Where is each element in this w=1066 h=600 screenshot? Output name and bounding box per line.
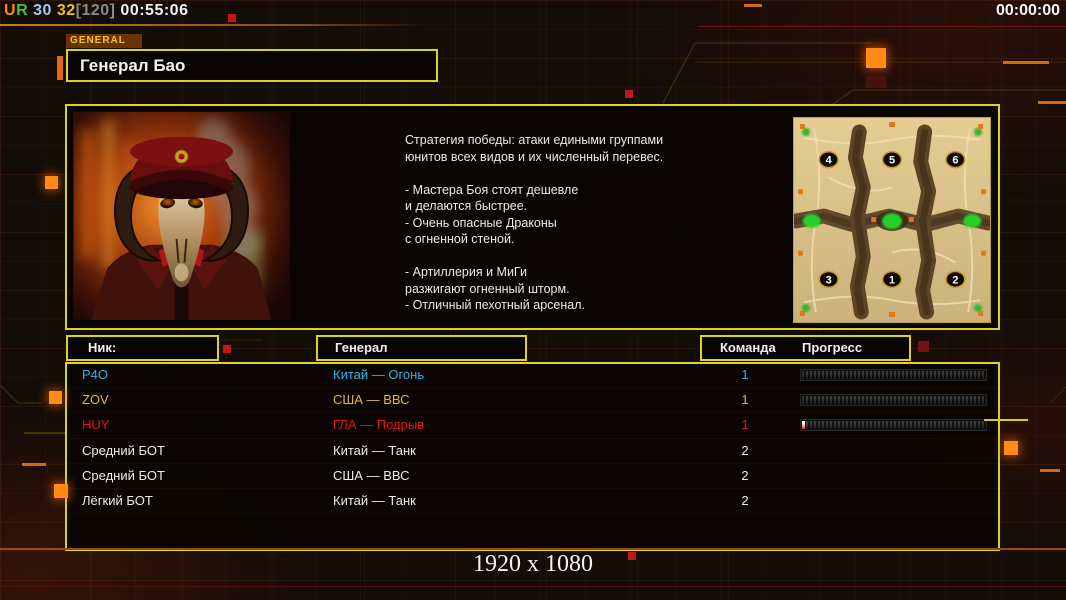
player-team: 1	[733, 413, 757, 437]
player-nick: Лёгкий БОТ	[82, 489, 153, 513]
general-header-label: Генерал	[335, 337, 387, 359]
progress-ticks	[802, 421, 985, 429]
decor-dash	[1003, 61, 1049, 64]
stat-segment: 32	[52, 2, 76, 19]
progress-header-label: Прогресс	[802, 337, 862, 359]
player-row: Средний БОТ Китай — Танк 2	[67, 439, 998, 464]
decor-dash	[744, 4, 762, 7]
player-row: ZOV США — ВВС 1	[67, 388, 998, 413]
players-rows: P4O Китай — Огонь 1 ZOV США — ВВС 1 HUY …	[67, 363, 998, 514]
player-row: Лёгкий БОТ Китай — Танк 2	[67, 489, 998, 514]
player-nick: HUY	[82, 413, 109, 437]
general-name: Генерал Бао	[68, 51, 436, 80]
title-accent-bar	[57, 56, 63, 80]
svg-text:3: 3	[826, 274, 832, 286]
player-general: Китай — Огонь	[333, 363, 424, 387]
player-general: Китай — Танк	[333, 439, 416, 463]
progress-ticks	[802, 371, 985, 379]
portrait-art	[73, 112, 290, 320]
stats-underline	[0, 24, 430, 26]
svg-text:5: 5	[889, 155, 895, 167]
player-team: 1	[733, 363, 757, 387]
player-general: ГЛА — Подрыв	[333, 413, 424, 437]
top-bar-stats: UR 30 32[120] 00:55:06	[4, 2, 188, 20]
decor-square	[866, 76, 886, 88]
decor-dash	[984, 419, 1028, 421]
bottom-accent-line	[0, 548, 1066, 550]
decor-square	[1004, 441, 1018, 455]
players-panel: P4O Китай — Огонь 1 ZOV США — ВВС 1 HUY …	[65, 362, 1000, 551]
player-team: 2	[733, 464, 757, 488]
svg-text:1: 1	[889, 274, 895, 286]
bottom-faint-line	[0, 586, 1066, 587]
minimap-art: 456312	[794, 118, 990, 322]
player-nick: ZOV	[82, 388, 109, 412]
general-title-box: Генерал Бао	[66, 49, 438, 82]
stat-segment: R	[16, 2, 28, 19]
top-right-line	[698, 26, 1066, 27]
svg-text:6: 6	[952, 155, 958, 167]
player-nick: P4O	[82, 363, 108, 387]
svg-text:4: 4	[826, 155, 832, 167]
briefing-panel: Стратегия победы: атаки едиными группами…	[65, 104, 1000, 330]
progress-ticks	[802, 396, 985, 404]
decor-square	[49, 391, 62, 404]
stat-segment: [120]	[76, 2, 116, 19]
player-general: США — ВВС	[333, 388, 410, 412]
svg-text:2: 2	[952, 274, 958, 286]
nick-header-label: Ник:	[88, 337, 116, 359]
minimap: 456312	[793, 117, 991, 323]
player-progress-bar	[800, 419, 987, 431]
decor-square	[223, 345, 231, 353]
player-general: Китай — Танк	[333, 489, 416, 513]
progress-fill	[802, 421, 805, 429]
decor-square	[866, 48, 886, 68]
player-team: 1	[733, 388, 757, 412]
decor-square	[918, 341, 929, 352]
player-progress-bar	[800, 369, 987, 381]
resolution-label: 1920 x 1080	[0, 551, 1066, 578]
player-row: P4O Китай — Огонь 1	[67, 363, 998, 388]
decor-square	[625, 90, 633, 98]
decor-dash	[22, 463, 46, 466]
player-row: Средний БОТ США — ВВС 2	[67, 464, 998, 489]
general-tab: GENERAL	[66, 34, 142, 48]
decor-square	[54, 484, 68, 498]
player-general: США — ВВС	[333, 464, 410, 488]
player-nick: Средний БОТ	[82, 464, 165, 488]
decor-square	[628, 552, 636, 560]
decor-dash	[1040, 469, 1060, 472]
player-team: 2	[733, 439, 757, 463]
strategy-text: Стратегия победы: атаки едиными группами…	[405, 132, 735, 314]
stat-segment: 00:55:06	[115, 2, 188, 19]
stat-segment: U	[4, 2, 16, 19]
decor-dash	[1038, 101, 1066, 104]
player-progress-bar	[800, 394, 987, 406]
nick-header-box: Ник:	[66, 335, 219, 361]
player-nick: Средний БОТ	[82, 439, 165, 463]
match-clock: 00:00:00	[996, 2, 1060, 20]
general-header-box: Генерал	[316, 335, 527, 361]
decor-square	[45, 176, 58, 189]
team-progress-header-box: Команда Прогресс	[700, 335, 911, 361]
stat-segment: 30	[28, 2, 52, 19]
team-header-label: Команда	[720, 337, 776, 359]
player-team: 2	[733, 489, 757, 513]
decor-square	[228, 14, 236, 22]
player-row: HUY ГЛА — Подрыв 1	[67, 413, 998, 438]
general-portrait	[73, 112, 290, 320]
